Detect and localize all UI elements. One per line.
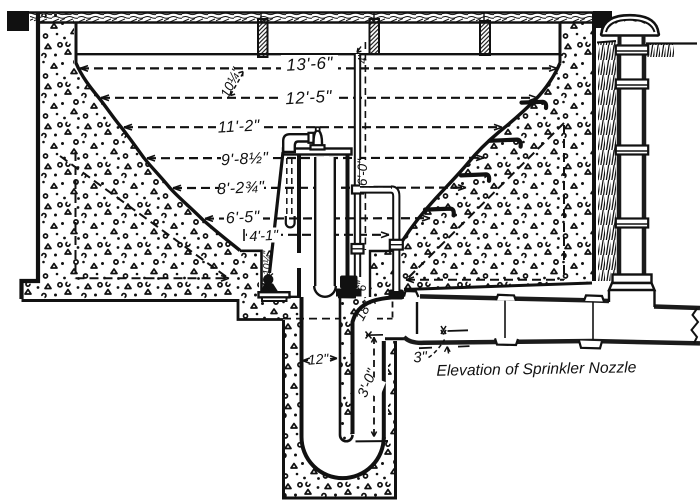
- svg-text:13'-6": 13'-6": [286, 53, 334, 74]
- svg-text:4": 4": [260, 277, 272, 288]
- svg-text:3": 3": [413, 349, 428, 367]
- svg-text:11'-2": 11'-2": [217, 117, 261, 136]
- svg-text:12'-5": 12'-5": [285, 87, 333, 108]
- svg-text:6": 6": [357, 280, 369, 291]
- svg-text:6'-0": 6'-0": [355, 158, 370, 186]
- svg-text:Elevation of Sprinkler Nozzle: Elevation of Sprinkler Nozzle: [436, 359, 637, 379]
- svg-text:8'-2¾": 8'-2¾": [217, 179, 266, 199]
- svg-text:6'-5": 6'-5": [225, 209, 261, 228]
- svg-text:9'-8½": 9'-8½": [221, 150, 270, 170]
- svg-text:12": 12": [307, 350, 330, 367]
- svg-text:4'-1": 4'-1": [249, 228, 280, 246]
- svg-text:10¼": 10¼": [261, 250, 273, 275]
- svg-text:4": 4": [358, 52, 370, 63]
